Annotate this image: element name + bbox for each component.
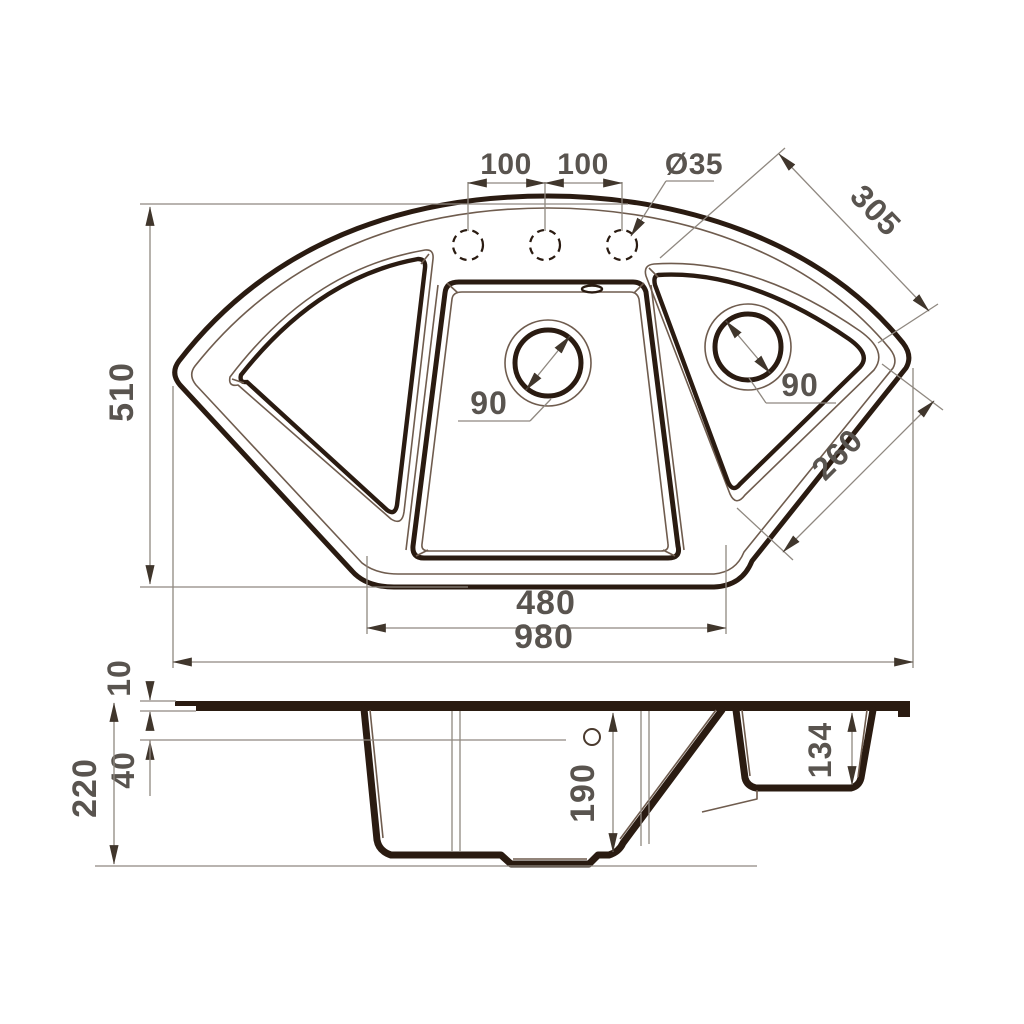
section-main-bowl-inner-right [620, 710, 716, 839]
dim-label-90-main: 90 [470, 385, 508, 421]
dim-label-305: 305 [843, 178, 908, 244]
dim-line-305 [779, 154, 929, 311]
dim-label-100-left: 100 [480, 148, 532, 181]
dim-label-980: 980 [514, 618, 574, 656]
section-second-bowl-step [702, 790, 757, 812]
section-main-bowl [364, 709, 722, 864]
overflow-slot [582, 286, 602, 293]
main-bowl-rim [413, 282, 679, 558]
technical-drawing-page: 100 100 Ø35 510 305 260 90 90 480 [0, 0, 1024, 1024]
section-view: 10 40 220 190 134 [66, 659, 910, 866]
section-rim-right-tab [898, 711, 910, 717]
section-overflow-hole [584, 729, 600, 745]
dim-label-510: 510 [103, 362, 141, 422]
dim-label-220: 220 [66, 758, 104, 818]
sink-drawing-svg: 100 100 Ø35 510 305 260 90 90 480 [0, 0, 1024, 1024]
faucet-hole-2 [530, 230, 560, 260]
dim-label-100-right: 100 [557, 148, 609, 181]
dim-label-d35: Ø35 [665, 148, 723, 181]
main-drain-diameter-arrow [526, 336, 570, 390]
dim-label-480: 480 [516, 584, 576, 622]
dim-label-10: 10 [101, 659, 137, 697]
dim-label-190: 190 [564, 763, 602, 823]
left-wing-rim [241, 259, 426, 512]
dim-label-260: 260 [805, 422, 870, 487]
ext-line-260-lower [737, 508, 793, 560]
right-drain-diameter-arrow [726, 321, 770, 373]
main-bowl-outer-left-line [406, 285, 438, 550]
top-view: 100 100 Ø35 510 305 260 90 90 480 [103, 148, 943, 668]
bowl-corner-tick-bl [416, 550, 428, 556]
dim-label-90-right: 90 [781, 367, 819, 403]
dim-label-134: 134 [802, 722, 838, 778]
faucet-hole-1 [453, 230, 483, 260]
dim-label-40: 40 [105, 751, 141, 789]
leader-90-main-line [530, 399, 551, 421]
bowl-corner-tick-br [663, 550, 675, 556]
section-rim [175, 701, 910, 711]
